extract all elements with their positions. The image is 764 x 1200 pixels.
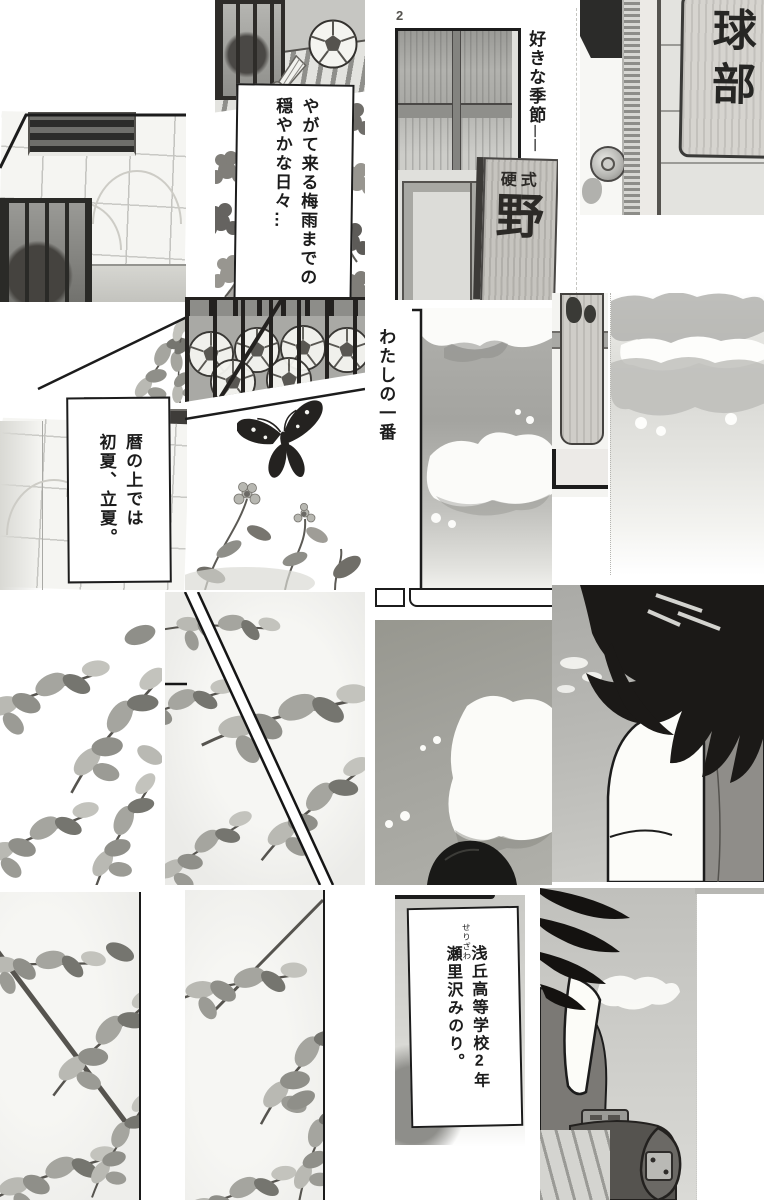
door-jamb: [640, 0, 657, 215]
door-seal-strip: [624, 0, 640, 215]
panel-leaves-4: [185, 890, 325, 1200]
panel-sky-2: [610, 293, 764, 575]
panel-leaves-3: [0, 892, 141, 1200]
panel-clubroom-window: 硬式 野 好きな季節──: [390, 8, 558, 300]
door-frame-left: [404, 183, 480, 300]
door-plaque-text: 球部: [706, 7, 753, 156]
panel-fragment: [409, 588, 552, 607]
sky-wash: [375, 620, 552, 885]
furigana: せりざわ: [459, 923, 473, 961]
character-bottom-blot: [566, 297, 582, 323]
flower-stems: [185, 463, 365, 590]
cloud-and-hair: [375, 620, 552, 885]
panel-watashi-sky: わたしの一番: [365, 293, 552, 590]
panel-girl-bag: [540, 888, 697, 1200]
panel-leaves-2: [165, 592, 365, 885]
panel-balls-butterfly: [185, 293, 365, 590]
caption-line: 暦の上では: [119, 433, 146, 547]
panel-wall-cage: [0, 110, 186, 302]
window-mullion: [452, 31, 461, 170]
girl-back-art: [552, 585, 764, 882]
leaves: [0, 595, 162, 885]
panel-leaves-1: [0, 595, 162, 885]
caption-introduction: 浅丘高等学校2年 瀬里沢みのり。 せりざわ: [407, 906, 524, 1128]
manga-page: 2: [0, 0, 764, 1200]
door-knob: [590, 146, 626, 182]
caption-line: 瀬里沢みのり。: [439, 945, 467, 1090]
sign-plank-bottom: [560, 293, 604, 445]
caption-text: 浅丘高等学校2年 瀬里沢みのり。: [439, 944, 492, 1090]
caption-text: 暦の上では 初夏、立夏。: [92, 433, 146, 547]
caption-line: やがて来る梅雨までの: [293, 97, 322, 287]
panel-sign-bottom: [552, 293, 608, 497]
panel-wall-calendar: 暦の上では 初夏、立夏。: [0, 293, 187, 590]
clouds: [611, 293, 764, 493]
panel-fragment-line: [395, 895, 495, 899]
panel-border: [0, 110, 186, 302]
caption-line: 初夏、立夏。: [92, 433, 119, 547]
leaf-corner: [0, 293, 187, 403]
caption-text: やがて来る梅雨までの 穏やかな日々…: [266, 97, 321, 288]
caption-calendar: 暦の上では 初夏、立夏。: [66, 397, 172, 584]
caption-mild-days: やがて来る梅雨までの 穏やかな日々…: [233, 83, 354, 300]
panel-sky-head: [375, 588, 552, 885]
panel-corner-border: [552, 449, 608, 489]
panel-girl-back: [552, 585, 764, 882]
panel-schoolyard-caption: やがて来る梅雨までの 穏やかな日々…: [215, 0, 365, 300]
skirt-pleats: [540, 1130, 610, 1200]
character-bottom-blot: [584, 305, 596, 323]
panel-name-caption: 浅丘高等学校2年 瀬里沢みのり。 せりざわ: [395, 895, 525, 1147]
leaves: [185, 890, 323, 1200]
caption-favorite-season: 好きな季節──: [522, 30, 549, 205]
leaves: [0, 892, 139, 1200]
panel-border: [365, 293, 552, 590]
door-knob-center: [601, 157, 615, 171]
caption-line: 穏やかな日々…: [266, 97, 295, 287]
panel-fragment-sliver: [695, 888, 764, 894]
door-plaque: 球部: [679, 0, 764, 159]
panel-club-door: 球部: [580, 0, 764, 242]
wall-line: [661, 162, 764, 164]
panel-fragment: [375, 588, 405, 607]
caption-line: 浅丘高等学校2年: [463, 944, 491, 1089]
leaves-and-border: [165, 592, 365, 885]
panel-edge-dashed: [576, 8, 577, 300]
white-below: [580, 215, 764, 242]
